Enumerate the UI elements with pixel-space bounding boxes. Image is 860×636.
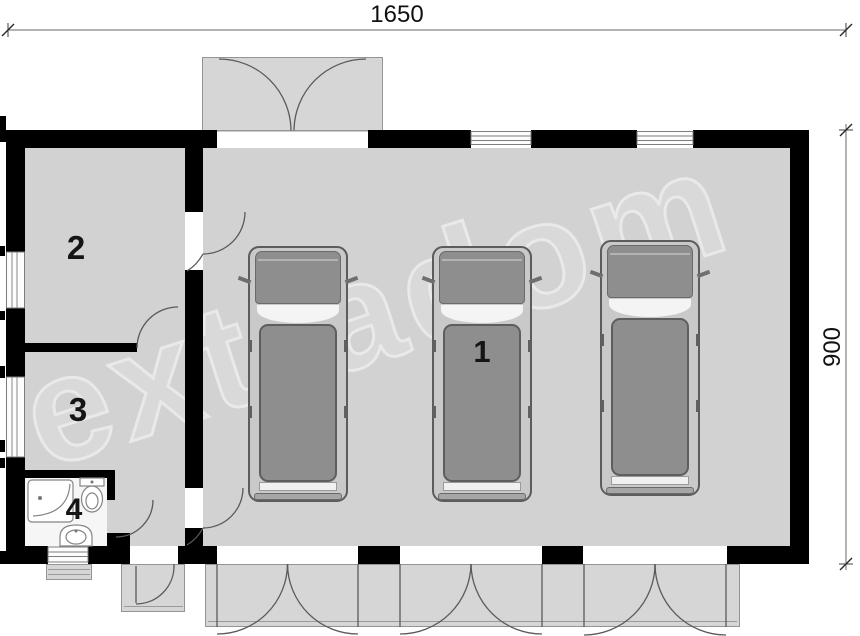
window-left-room2 <box>7 252 25 308</box>
wall-divider-2 <box>185 270 203 488</box>
van-windshield <box>257 305 339 323</box>
wall-bathroom-right <box>107 478 115 500</box>
dimension-height-label: 900 <box>820 307 846 387</box>
edge-tick <box>0 440 5 452</box>
wall-divider-3 <box>185 528 203 546</box>
dim-tick <box>840 558 852 570</box>
dimension-width-label: 1650 <box>347 2 447 28</box>
wall-bottom-1 <box>6 546 48 564</box>
van-windshield <box>441 305 523 323</box>
wall-left-2 <box>6 308 25 377</box>
window-bathroom <box>48 547 88 562</box>
room-label-2: 2 <box>56 226 96 270</box>
edge-tick <box>0 311 5 320</box>
dim-tick <box>840 24 852 36</box>
van-rear-window <box>611 476 689 485</box>
wall-left-1 <box>6 130 25 252</box>
room-label-garage: 1 <box>462 330 502 374</box>
van-roof <box>259 324 337 482</box>
edge-tick <box>0 458 5 468</box>
wall-bottom-right <box>727 546 809 564</box>
wall-bottom-pier-2 <box>542 546 583 564</box>
van-bumper <box>438 493 526 500</box>
dim-tick <box>840 124 852 136</box>
edge-tick <box>0 246 5 256</box>
van-roof <box>611 318 689 476</box>
door-leaf-room2 <box>187 254 203 271</box>
wall-divider-1 <box>185 148 203 212</box>
van-bumper <box>606 487 694 494</box>
wall-room2-room3 <box>25 343 137 352</box>
side-door-stoop <box>121 564 185 612</box>
entrance-canopy <box>202 57 383 131</box>
driveway-apron <box>205 564 740 627</box>
wall-bathroom-top <box>25 470 115 478</box>
window-steps <box>46 564 92 580</box>
wall-right <box>790 130 809 564</box>
wall-top-3 <box>531 130 637 148</box>
window-top-1 <box>471 132 531 145</box>
window-top-2 <box>637 132 693 145</box>
wall-top-1 <box>6 130 217 148</box>
van-2 <box>432 246 532 502</box>
window-left-room3 <box>7 377 25 457</box>
wall-bathroom-stub <box>107 533 130 546</box>
dim-tick <box>2 24 14 36</box>
van-hood <box>607 245 693 298</box>
wall-bottom-pier-1 <box>358 546 400 564</box>
wall-bottom-2 <box>88 546 130 564</box>
edge-tick <box>0 366 5 378</box>
van-1 <box>248 246 348 502</box>
room-label-3: 3 <box>58 388 98 432</box>
wall-bottom-3 <box>178 546 217 564</box>
edge-tick <box>0 551 6 564</box>
van-3 <box>600 240 700 496</box>
van-rear-window <box>259 482 337 491</box>
van-hood <box>439 251 525 304</box>
van-rear-window <box>443 482 521 491</box>
floor-plan: extradom <box>0 0 860 636</box>
van-hood <box>255 251 341 304</box>
van-bumper <box>254 493 342 500</box>
edge-tick <box>0 116 6 142</box>
room-label-4: 4 <box>54 488 94 532</box>
van-windshield <box>609 299 691 317</box>
wall-top-2 <box>368 130 471 148</box>
